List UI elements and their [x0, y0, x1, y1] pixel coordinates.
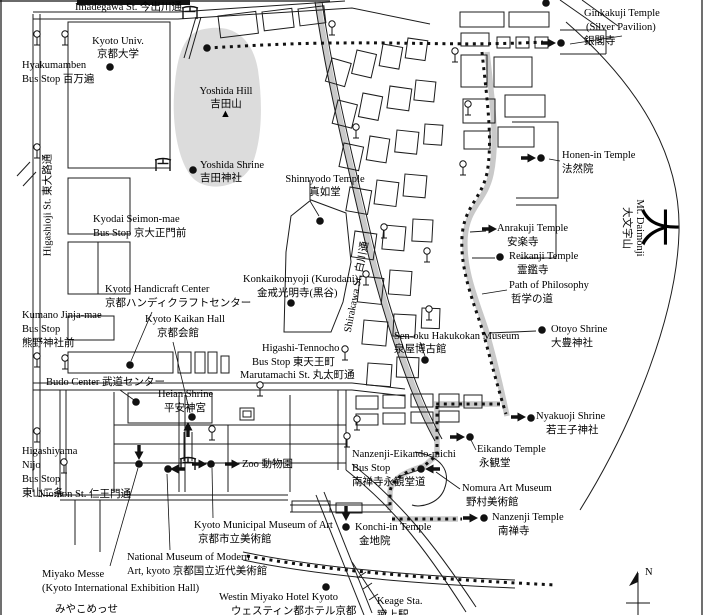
label-marutamachi-st: Marutamachi St. 丸太町通 — [240, 369, 355, 382]
label-westin-miyako-hotel-line1: Westin Miyako Hotel Kyoto — [219, 591, 338, 604]
label-nanzenji-temple: Nanzenji Temple 南禅寺 — [492, 511, 564, 539]
label-ginkakuji-temple: Ginkakuji Temple (Silver Pavilion) 銀閣寺 — [584, 7, 660, 49]
label-kyoto-kaikan-hall: Kyoto Kaikan Hall 京都会館 — [145, 313, 225, 341]
label-eikando-temple: Eikando Temple 永観堂 — [477, 443, 546, 471]
label-higashioji-st: Higashioji St. 東大路通 — [42, 154, 55, 256]
label-westin-miyako-hotel-line2: ウェスティン都ホテル京都 — [231, 605, 356, 615]
label-higashi-tennocho-bus-stop: Higashi-Tennocho Bus Stop 東天王町 — [252, 342, 339, 370]
label-kyodai-seimon-mae-bus-stop: Kyodai Seimon-mae Bus Stop 京大正門前 — [93, 213, 186, 241]
label-konkaikomyoji-kurodani: Konkaikomyoji (Kurodani) 金戒光明寺(黒谷) — [243, 273, 358, 301]
label-path-of-philosophy: Path of Philosophy 哲学の道 — [509, 279, 589, 307]
label-hyakumamben-bus-stop: Hyakumamben Bus Stop 百万遍 — [22, 59, 94, 87]
compass-north-label: N — [645, 566, 653, 579]
compass-needle-icon — [629, 571, 638, 586]
label-honen-in-temple: Honen-in Temple 法然院 — [562, 149, 635, 177]
label-keage-station-line1: Keage Sta. — [377, 595, 422, 608]
label-yoshida-shrine: Yoshida Shrine 吉田神社 — [200, 159, 264, 185]
label-miyako-messe-line1: Miyako Messe — [42, 568, 104, 581]
label-budo-center: Budo Center 武道センター — [46, 376, 165, 389]
label-nomura-art-museum: Nomura Art Museum 野村美術館 — [462, 482, 552, 510]
daimonji-dai-character: 大 — [638, 207, 678, 247]
label-kumano-jinja-mae-bus-stop: Kumano Jinja-mae Bus Stop 熊野神社前 — [22, 309, 102, 351]
label-miyako-messe-line3: みやこめっせ — [55, 603, 118, 615]
label-keage-station-line2: 蹴上駅 — [377, 609, 409, 615]
label-senoku-hakukokan-museum: Sen-oku Hakukokan Museum 泉屋博古館 — [394, 330, 519, 356]
label-shinnyodo-temple: Shinnyodo Temple 真如堂 — [282, 173, 368, 199]
label-zoo: Zoo 動物園 — [242, 458, 293, 471]
label-kyoto-municipal-museum-of-art: Kyoto Municipal Museum of Art 京都市立美術館 — [194, 519, 333, 547]
label-nanzenji-eikando-michi-bus-stop: Nanzenji-Eikando-michi Bus Stop 南禅寺永観堂道 — [352, 448, 456, 490]
label-nyakuoji-shrine: Nyakuoji Shrine 若王子神社 — [536, 410, 605, 438]
label-reikanji-temple: Reikanji Temple 霊鑑寺 — [509, 250, 578, 278]
kyoto-philosophers-path-map: Imadegawa St. 今出川通 Kyoto Univ. 京都大学 Hyak… — [0, 0, 704, 615]
label-konchi-in-temple: Konchi-in Temple 金地院 — [355, 521, 431, 549]
label-kyoto-handicraft-center: Kyoto Handicraft Center 京都ハンディクラフトセンター — [105, 283, 251, 311]
label-kyoto-univ: Kyoto Univ. 京都大学 — [80, 35, 156, 61]
label-heian-shrine: Heian Shrine 平安神宮 — [158, 388, 213, 416]
label-anrakuji-temple: Anrakuji Temple 安楽寺 — [497, 222, 568, 250]
label-niomon-st: Niomon St. 仁王門通 — [38, 488, 131, 501]
label-imadegawa-st: Imadegawa St. 今出川通 — [75, 1, 182, 14]
label-national-museum-of-modern-art: National Museum of Modern Art, kyoto 京都国… — [127, 551, 267, 579]
mountain-peak-icon: ▲ — [220, 108, 231, 121]
label-miyako-messe-line2: (Kyoto International Exhibition Hall) — [42, 582, 199, 595]
label-otoyo-shrine: Otoyo Shrine 大豊神社 — [551, 323, 607, 351]
